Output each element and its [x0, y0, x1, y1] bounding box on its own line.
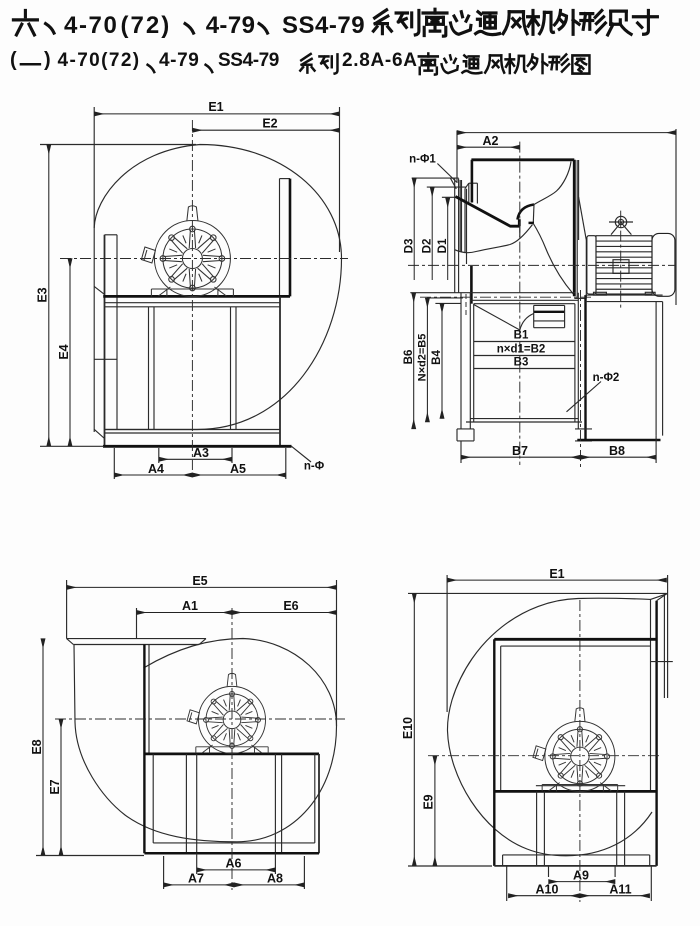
svg-text:n-Φ: n-Φ	[304, 461, 325, 473]
svg-text:B7: B7	[512, 444, 528, 458]
svg-text:(: (	[10, 49, 17, 71]
svg-text:A4: A4	[148, 462, 164, 476]
svg-text:B6: B6	[403, 350, 415, 365]
svg-text:SS4-79: SS4-79	[218, 50, 279, 71]
svg-text:A2: A2	[483, 134, 499, 148]
svg-text:A5: A5	[230, 462, 246, 476]
svg-text:E6: E6	[283, 599, 298, 613]
svg-text:E2: E2	[262, 116, 277, 130]
svg-text:A11: A11	[609, 882, 631, 896]
svg-text:4-70: 4-70	[64, 12, 118, 39]
svg-text:E1: E1	[208, 100, 223, 114]
svg-text:4-79: 4-79	[159, 50, 199, 71]
svg-text:E9: E9	[422, 794, 436, 809]
svg-text:B3: B3	[514, 357, 529, 369]
svg-text:2.8A-6A: 2.8A-6A	[342, 50, 418, 71]
svg-text:D3: D3	[403, 239, 415, 254]
svg-text:E7: E7	[48, 779, 62, 794]
svg-text:E3: E3	[36, 287, 50, 302]
svg-text:A9: A9	[573, 868, 589, 882]
svg-text:E4: E4	[57, 344, 71, 359]
svg-text:N×d2=B5: N×d2=B5	[417, 334, 429, 382]
svg-text:D2: D2	[421, 239, 433, 254]
svg-text:A6: A6	[226, 857, 242, 871]
svg-text:4-70(72): 4-70(72)	[58, 50, 141, 71]
svg-text:A3: A3	[193, 446, 209, 460]
svg-text:A8: A8	[267, 872, 283, 886]
svg-text:E10: E10	[401, 717, 415, 739]
svg-text:(72): (72)	[121, 12, 172, 39]
svg-text:B8: B8	[609, 444, 625, 458]
svg-text:A7: A7	[188, 872, 204, 886]
svg-text:A10: A10	[536, 882, 559, 896]
svg-text:n×d1=B2: n×d1=B2	[497, 344, 546, 356]
svg-text:E1: E1	[549, 567, 564, 581]
svg-text:E8: E8	[30, 739, 44, 754]
svg-text:B4: B4	[431, 350, 443, 365]
svg-text:n-Φ2: n-Φ2	[593, 372, 620, 384]
svg-text:B1: B1	[514, 330, 529, 342]
svg-text:E5: E5	[192, 574, 207, 588]
svg-text:n-Φ1: n-Φ1	[409, 154, 436, 166]
svg-text:A1: A1	[182, 599, 198, 613]
svg-text:4-79: 4-79	[206, 12, 256, 39]
svg-text:): )	[44, 49, 51, 71]
svg-text:D1: D1	[437, 238, 449, 253]
svg-text:SS4-79: SS4-79	[282, 12, 365, 39]
